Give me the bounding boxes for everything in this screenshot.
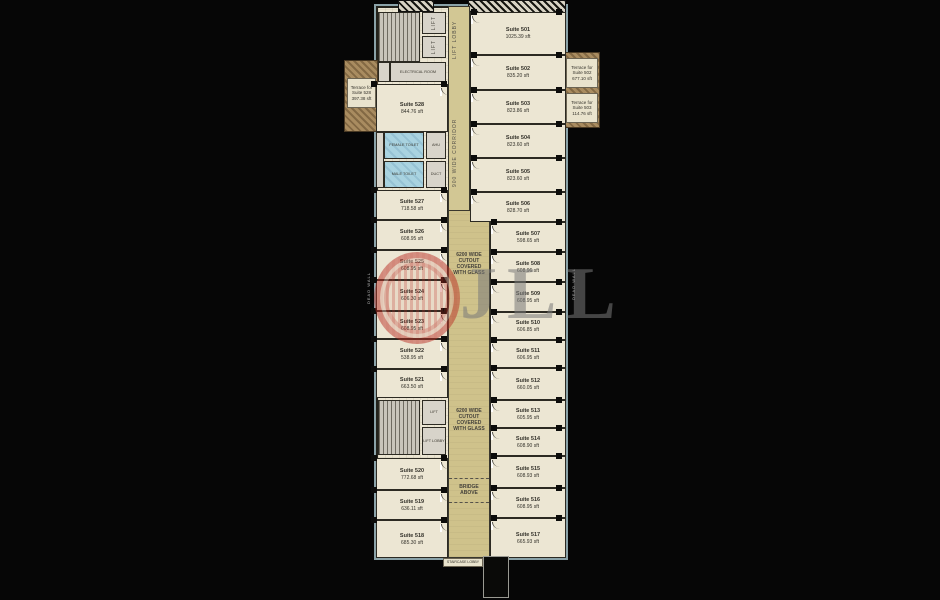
terrace-503-label: Terrace for Suite 503 114.76 sft	[566, 93, 598, 123]
side-label-left: DEAD WALL	[366, 252, 371, 304]
suite-527: Suite 527718.58 sft	[376, 190, 448, 220]
suite-name: Suite 522	[400, 348, 424, 355]
column-marker	[491, 515, 497, 521]
terrace-528-area: 397.38 sft	[352, 96, 372, 101]
door-arc	[440, 373, 448, 381]
suite-area: 605.95 sft	[517, 415, 539, 421]
female-toilet-label: FEMALE TOILET	[389, 143, 418, 148]
column-marker	[471, 9, 477, 15]
door-arc	[491, 344, 499, 352]
staircase-lobby-label: STAIRCASE LOBBY	[443, 558, 483, 567]
suite-name: Suite 502	[506, 66, 530, 73]
suite-name: Suite 506	[506, 201, 530, 208]
column-marker	[556, 453, 562, 459]
column-marker	[556, 397, 562, 403]
column-marker	[471, 52, 477, 58]
suite-name: Suite 513	[516, 408, 540, 415]
column-marker	[491, 397, 497, 403]
column-marker	[556, 365, 562, 371]
suite-area: 538.95 sft	[401, 355, 423, 361]
suite-name: Suite 516	[516, 497, 540, 504]
bridge-dash-top	[449, 478, 489, 479]
column-marker	[556, 219, 562, 225]
column-marker	[471, 121, 477, 127]
door-arc	[471, 94, 479, 102]
duct-label: DUCT	[431, 172, 442, 177]
door-arc	[491, 226, 499, 234]
suite-area: 828.70 sft	[507, 208, 529, 214]
suite-514: Suite 514608.90 sft	[490, 428, 566, 456]
suite-area: 598.65 sft	[517, 238, 539, 244]
column-marker	[491, 485, 497, 491]
terrace-502-label: Terrace for Suite 502 677.10 sft	[566, 58, 598, 88]
door-arc	[491, 460, 499, 468]
duct-room: DUCT	[426, 161, 446, 188]
suite-area: 636.11 sft	[401, 506, 423, 512]
suite-507: Suite 507598.65 sft	[490, 222, 566, 252]
column-marker	[371, 217, 377, 223]
suite-517: Suite 517665.93 sft	[490, 518, 566, 558]
suite-name: Suite 503	[506, 101, 530, 108]
door-arc	[440, 343, 448, 351]
bridge-dash-bottom	[449, 502, 489, 503]
suite-area: 823.60 sft	[507, 142, 529, 148]
column-marker	[441, 455, 447, 461]
column-marker	[441, 217, 447, 223]
electrical-room: ELECTRICAL ROOM	[390, 62, 446, 82]
suite-503: Suite 503823.86 sft	[470, 90, 566, 124]
suite-name: Suite 528	[400, 102, 424, 109]
suite-area: 823.86 sft	[507, 108, 529, 114]
column-marker	[556, 121, 562, 127]
column-marker	[371, 455, 377, 461]
column-marker	[371, 517, 377, 523]
lift-shaft-2: LIFT	[422, 36, 446, 58]
ahu-label: AHU	[432, 143, 440, 148]
ahu-room: AHU	[426, 132, 446, 159]
staircase-mid	[378, 400, 420, 455]
suite-name: Suite 504	[506, 135, 530, 142]
column-marker	[491, 337, 497, 343]
suite-area: 665.93 sft	[517, 539, 539, 545]
suite-area: 718.58 sft	[401, 206, 423, 212]
suite-512: Suite 512660.05 sft	[490, 368, 566, 400]
door-arc	[491, 432, 499, 440]
female-toilet: FEMALE TOILET	[384, 132, 424, 159]
suite-502: Suite 502835.20 sft	[470, 55, 566, 90]
column-marker	[441, 366, 447, 372]
watermark-letters: JLL	[460, 254, 626, 334]
lift-lobby-small: LIFT LOBBY	[422, 427, 446, 455]
column-marker	[556, 337, 562, 343]
column-marker	[556, 515, 562, 521]
electrical-room-label: ELECTRICAL ROOM	[400, 70, 436, 75]
door-arc	[440, 462, 448, 470]
suite-526: Suite 526608.95 sft	[376, 220, 448, 250]
column-marker	[441, 487, 447, 493]
suite-name: Suite 515	[516, 466, 540, 473]
cutout-label-lower: 6200 WIDE CUTOUT COVERED WITH GLASS	[451, 408, 487, 432]
column-marker	[371, 366, 377, 372]
column-marker	[441, 187, 447, 193]
suite-name: Suite 511	[516, 348, 540, 355]
door-arc	[491, 404, 499, 412]
suite-area: 844.76 sft	[401, 109, 423, 115]
column-marker	[441, 517, 447, 523]
column-marker	[441, 336, 447, 342]
suite-name: Suite 517	[516, 532, 540, 539]
suite-511: Suite 511606.95 sft	[490, 340, 566, 368]
suite-520: Suite 520772.68 sft	[376, 458, 448, 490]
column-marker	[371, 187, 377, 193]
suite-name: Suite 526	[400, 229, 424, 236]
suite-519: Suite 519636.11 sft	[376, 490, 448, 520]
male-toilet-label: MALE TOILET	[392, 172, 417, 177]
suite-518: Suite 518685.30 sft	[376, 520, 448, 558]
suite-505: Suite 505823.60 sft	[470, 158, 566, 192]
suite-area: 608.95 sft	[517, 504, 539, 510]
watermark-logo-ring	[374, 252, 460, 344]
door-arc	[440, 224, 448, 232]
column-marker	[556, 52, 562, 58]
suite-area: 663.50 sft	[401, 384, 423, 390]
suite-name: Suite 514	[516, 436, 540, 443]
suite-area: 660.05 sft	[517, 385, 539, 391]
suite-516: Suite 516608.95 sft	[490, 488, 566, 518]
door-arc	[471, 59, 479, 67]
door-arc	[440, 194, 448, 202]
suite-521: Suite 521663.50 sft	[376, 369, 448, 398]
suite-name: Suite 527	[400, 199, 424, 206]
lift-3-label: LIFT	[430, 410, 438, 415]
suite-area: 606.95 sft	[517, 355, 539, 361]
suite-area: 1025.39 sft	[506, 34, 531, 40]
door-arc	[491, 492, 499, 500]
column-marker	[441, 81, 447, 87]
staircase-top	[378, 12, 420, 62]
terrace-503-area: 114.76 sft	[572, 111, 591, 116]
terrace-503-name: Terrace for Suite 503	[571, 100, 593, 111]
suite-515: Suite 515608.93 sft	[490, 456, 566, 488]
door-arc	[471, 128, 479, 136]
column-marker	[556, 87, 562, 93]
column-marker	[491, 365, 497, 371]
column-marker	[371, 487, 377, 493]
column-marker	[556, 9, 562, 15]
suite-504: Suite 504823.60 sft	[470, 124, 566, 158]
door-arc	[491, 522, 499, 530]
lift-shaft-1: LIFT	[422, 12, 446, 34]
column-marker	[556, 425, 562, 431]
suite-501: Suite 5011025.39 sft	[470, 12, 566, 55]
bridge-label: BRIDGE ABOVE	[451, 484, 487, 496]
suite-name: Suite 505	[506, 169, 530, 176]
suite-area: 608.93 sft	[517, 473, 539, 479]
terrace-502-area: 677.10 sft	[572, 76, 592, 81]
door-arc	[471, 162, 479, 170]
column-marker	[471, 155, 477, 161]
suite-name: Suite 507	[516, 231, 540, 238]
suite-528: Suite 528844.76 sft	[376, 84, 448, 132]
suite-name: Suite 512	[516, 378, 540, 385]
suite-area: 685.30 sft	[401, 540, 423, 546]
column-marker	[371, 247, 377, 253]
door-arc	[471, 16, 479, 24]
floor-plan-canvas: LIFT LOBBY 900 WIDE CORRIDOR 6200 WIDE C…	[0, 0, 940, 600]
fire-stair-stub	[483, 556, 509, 598]
suite-name: Suite 520	[400, 468, 424, 475]
lift-lobby-small-label: LIFT LOBBY	[423, 439, 444, 444]
column-marker	[371, 81, 377, 87]
column-marker	[491, 453, 497, 459]
lift-shaft-3: LIFT	[422, 400, 446, 425]
column-marker	[441, 247, 447, 253]
lift-lobby-vertical-label: LIFT LOBBY	[452, 14, 466, 66]
terrace-528-name: Terrace for Suite 528	[351, 85, 373, 96]
suite-name: Suite 521	[400, 377, 424, 384]
lift-1-label: LIFT	[432, 16, 437, 30]
duct-room-top	[378, 62, 390, 82]
column-marker	[471, 189, 477, 195]
column-marker	[491, 219, 497, 225]
suite-area: 772.68 sft	[401, 475, 423, 481]
duct-strip	[376, 132, 384, 188]
suite-area: 608.95 sft	[401, 236, 423, 242]
column-marker	[556, 155, 562, 161]
column-marker	[556, 485, 562, 491]
column-marker	[371, 336, 377, 342]
door-arc	[440, 494, 448, 502]
column-marker	[491, 425, 497, 431]
door-arc	[440, 524, 448, 532]
suite-area: 823.60 sft	[507, 176, 529, 182]
column-marker	[471, 87, 477, 93]
door-arc	[491, 372, 499, 380]
corridor-label: 900 WIDE CORRIDOR	[452, 100, 466, 206]
suite-513: Suite 513605.95 sft	[490, 400, 566, 428]
column-marker	[556, 189, 562, 195]
suite-name: Suite 518	[400, 533, 424, 540]
canopy-hatch-top-left	[398, 0, 434, 12]
door-arc	[440, 88, 448, 96]
suite-name: Suite 501	[506, 27, 530, 34]
suite-area: 608.90 sft	[517, 443, 539, 449]
suite-name: Suite 519	[400, 499, 424, 506]
suite-area: 835.20 sft	[507, 73, 529, 79]
suite-506: Suite 506828.70 sft	[470, 192, 566, 222]
terrace-502-name: Terrace for Suite 502	[571, 65, 593, 76]
lift-2-label: LIFT	[432, 40, 437, 54]
male-toilet: MALE TOILET	[384, 161, 424, 188]
door-arc	[471, 196, 479, 204]
